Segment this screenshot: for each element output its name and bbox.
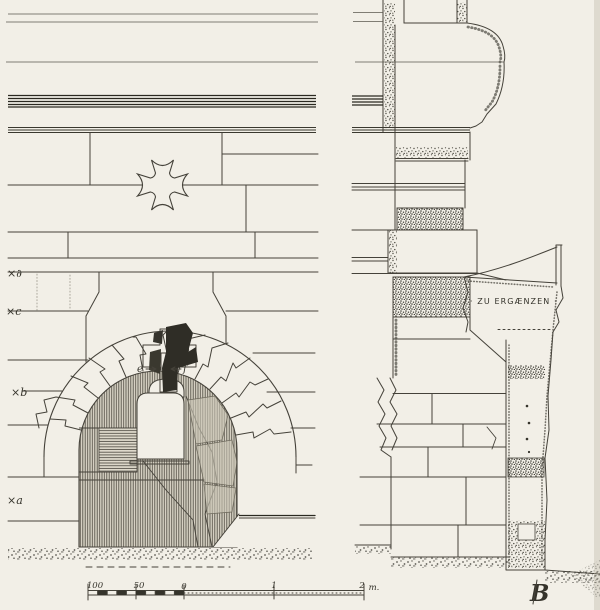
section-outer-strip <box>506 286 563 570</box>
marker-a: ×a <box>7 494 23 507</box>
ground-line-elevation <box>8 548 312 567</box>
monogram: B <box>529 580 549 607</box>
scale-label-0: 0 <box>181 582 187 592</box>
section-broken-edge <box>377 378 397 549</box>
blocked-arch <box>79 371 239 547</box>
rubble-block-hatched <box>99 428 137 472</box>
label-e: e <box>137 364 143 375</box>
heavy-molding-band <box>8 96 316 108</box>
section-top-cornice <box>352 0 505 133</box>
scale-unit: m. <box>369 583 380 593</box>
section-lower-wall <box>355 394 508 558</box>
marker-b: ×b <box>11 386 27 399</box>
portal-projecting-block <box>86 272 226 362</box>
scale-label-50: 50 <box>134 581 145 591</box>
scale-subdivisions <box>98 591 184 596</box>
elevation-drawing: e f ×∂ ×c ×b ×a <box>6 14 318 567</box>
walled-niche <box>130 393 189 464</box>
scale-labels: 100 50 0 1 2 m. <box>87 581 380 593</box>
drawing-canvas: e f ×∂ ×c ×b ×a <box>0 0 600 610</box>
monogram-b: B <box>529 580 549 607</box>
height-markers: ×∂ ×c ×b ×a <box>6 267 27 507</box>
missing-profile-block: · ZU ERGÆNZEN · <box>463 245 562 332</box>
consecration-cross <box>138 160 188 210</box>
lower-molding-band <box>8 128 316 133</box>
marker-c: ×c <box>6 305 21 318</box>
scale-label-2: 2 <box>358 581 364 591</box>
portal: e f <box>36 272 296 547</box>
note-zu-ergaenzen: · ZU ERGÆNZEN · <box>470 297 558 306</box>
section-drawing: · ZU ERGÆNZEN · B <box>352 0 600 607</box>
sheet-edge-shadow <box>594 0 600 610</box>
section-wall-courses <box>352 132 506 378</box>
ground-line-section <box>355 545 600 583</box>
joint-dots <box>526 405 531 453</box>
string-course-lines <box>6 14 318 133</box>
label-f: f <box>182 364 189 375</box>
drawing-sheet: e f ×∂ ×c ×b ×a <box>0 0 600 610</box>
scale-bar: 100 50 0 1 2 m. <box>87 581 380 600</box>
scale-label-1: 1 <box>271 581 276 591</box>
marker-d: ×∂ <box>7 267 22 280</box>
scale-label-100: 100 <box>87 581 104 591</box>
